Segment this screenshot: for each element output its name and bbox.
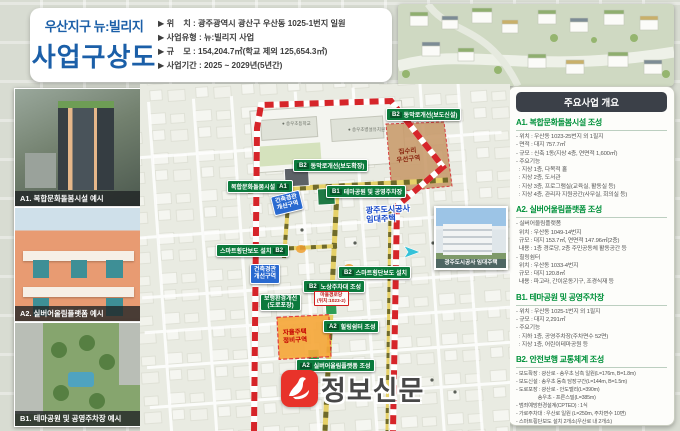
map-label-a2-healing-shelter: A2 힐링쉼터 조성 [323,320,379,333]
map-poi-school-1: ● 송우초등학교 [282,121,311,127]
render-annex [25,153,55,188]
map-label-b1-theme-park: B1 테마공원 및 공영주차장 [326,185,406,198]
section-heading-a2: A2. 실버어울림플랫폼 조성 [516,204,667,218]
fact-scale: ▶ 규 모 : 154,204.7㎡(학교 제외 125,654.3㎡) [158,45,386,59]
render-building [119,323,142,385]
map-label-dongmak-widen-sidewalk: B2 동막로개선(보도확장) [293,159,368,172]
label-text: 힐링쉼터 조성 [341,322,376,331]
label-text: 스마트횡단보도 설치 [356,268,407,277]
render-tree [89,393,105,409]
label-text: 동막로개선(보도신설) [404,110,458,119]
inset-caption: 광주도시공사 임대주택 [436,259,506,268]
section-heading-b1: B1. 테마공원 및 공영주차장 [516,292,667,306]
render-window [106,260,123,278]
project-title-block: 우산지구 뉴:빌리지 사업구상도 [30,16,158,74]
section-a2: - 실버어울림플랫폼 위치 : 우산동 1049-14번지 규모 : 대지 15… [516,220,667,286]
label-text: 동막로개선(보도확장) [311,161,365,170]
district-name: 우산지구 뉴:빌리지 [30,16,158,35]
label-code: B2 [307,284,319,290]
map-zone-house-repair: 집수리 우선구역 [395,147,420,164]
map-poi-school-2: ● 송우초병설유치원 [348,127,385,133]
fact-type: ▶ 사업유형 : 뉴:빌리지 사업 [158,31,386,45]
example-photo-a2: A2. 실버어울림플랫폼 예시 [14,207,143,322]
photo-caption-a2: A2. 실버어울림플랫폼 예시 [15,306,142,321]
title-card: 우산지구 뉴:빌리지 사업구상도 ▶ 위 치 : 광주광역시 광산구 우산동 1… [30,8,392,82]
section-b1: - 위치 : 우산동 1025-1번지 외 1필지 - 규모 : 대지 2,29… [516,308,667,349]
photo-caption-a1: A1. 복합문화돌봄시설 예시 [15,191,142,206]
map-label-walk-env-paving: 보행환경개선 (도로포장) [260,294,301,311]
page-title: 사업구상도 [30,37,158,74]
watermark-text: 정보신문 [321,369,424,408]
aerial-render-photo [398,4,674,86]
project-facts: ▶ 위 치 : 광주광역시 광산구 우산동 1025-1번지 일원 ▶ 사업유형… [158,17,392,73]
map-label-smart-crosswalk-mid: B2 스마트횡단보도 설치 [338,266,411,279]
render-window [33,260,50,278]
render-tree [51,342,67,358]
bird-logo-icon [281,370,318,407]
render-tree [99,354,115,370]
label-code: B2 [390,112,402,118]
section-heading-b2: B2. 안전보행 교통체계 조성 [516,354,667,368]
map-label-dongmak-new-sidewalk: B2 동막로개선(보도신설) [386,108,461,121]
fact-period: ▶ 사업기간 : 2025 ~ 2029년(5년간) [158,59,386,73]
render-building [15,323,43,414]
render-window [71,260,88,278]
render-tree [79,335,95,351]
render-building [58,108,114,190]
map-label-a1-culture-care-facility: 복합문화돌봄시설 A1 [227,180,293,193]
map-label-architecture-zone-2: 건축경관 개선구역 [250,264,280,284]
example-photo-a1: A1. 복합문화돌봄시설 예시 [14,88,143,207]
bird-glyph [281,370,318,407]
label-text: 복합문화돌봄시설 [231,182,275,191]
render-tree [53,385,69,401]
aerial-render-art [398,4,674,86]
fact-location: ▶ 위 치 : 광주광역시 광산구 우산동 1025-1번지 일원 [158,17,386,31]
label-code: A2 [300,363,312,369]
example-photo-b1: B1. 테마공원 및 공영주차장 예시 [14,322,143,427]
label-text: 스마트횡단보도 설치 [220,246,271,255]
section-heading-a1: A1. 복합문화돌봄시설 조성 [516,117,667,131]
photo-caption-b1: B1. 테마공원 및 공영주차장 예시 [15,411,142,426]
label-code: B2 [342,270,354,276]
map-label-senior-center: 마을경로당 (위치:1023-2) [314,291,349,306]
label-code: B2 [297,163,309,169]
label-code: A2 [327,324,339,330]
map-label-gdc-rental-housing: 광주도시공사 임대주택 [366,204,411,224]
section-a1: - 위치 : 우산동 1023-25번지 외 1필지 - 면적 : 대지 757… [516,133,667,199]
rental-housing-photo: 광주도시공사 임대주택 [434,206,508,270]
newspaper-watermark: 정보신문 [281,369,424,408]
label-code: B1 [330,189,342,195]
label-code: A1 [277,184,289,190]
panel-title: 주요사업 개요 [516,92,667,112]
label-text: 테마공원 및 공영주차장 [344,187,403,196]
project-overview-panel: 주요사업 개요 A1. 복합문화돌봄시설 조성 - 위치 : 우산동 1023-… [508,86,675,426]
section-b2: - 보도확장 : 광산로 - 송우초 남측 일원(L=176m, B=1.8m)… [516,370,667,426]
map-label-smart-crosswalk-left: 스마트횡단보도 설치 B2 [216,244,289,257]
map-zone-autonomous-housing: 자율주택 정비구역 [283,328,308,344]
render-pool [68,372,93,386]
site-plan-poster: 우산지구 뉴:빌리지 사업구상도 ▶ 위 치 : 광주광역시 광산구 우산동 1… [0,0,680,431]
label-text: 노상주차대 조성 [321,282,361,291]
render-balcony [23,287,135,297]
label-code: B2 [273,248,285,254]
inset-building [443,224,492,255]
